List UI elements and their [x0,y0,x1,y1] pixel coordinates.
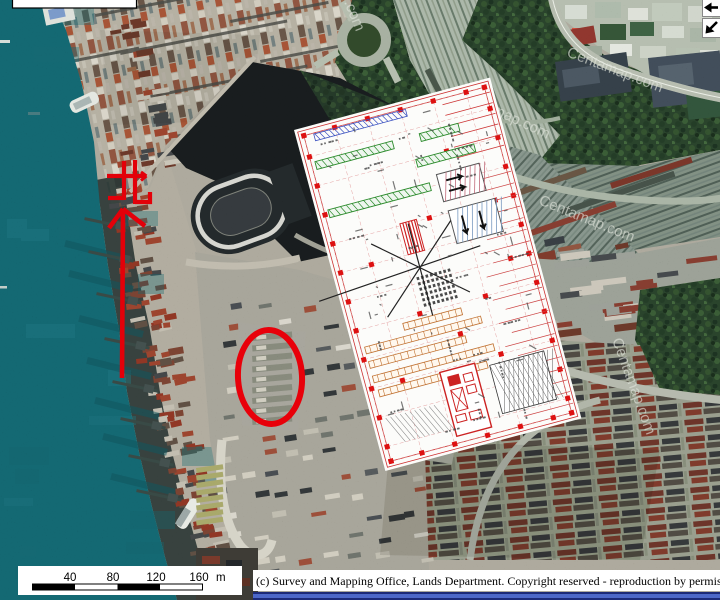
svg-text:160: 160 [189,572,208,584]
svg-text:40: 40 [64,572,77,584]
svg-text:m: m [216,572,226,584]
svg-text:120: 120 [146,572,165,584]
svg-text:(c) Survey and Mapping Office,: (c) Survey and Mapping Office, Lands Dep… [256,574,720,588]
svg-text:80: 80 [107,572,120,584]
